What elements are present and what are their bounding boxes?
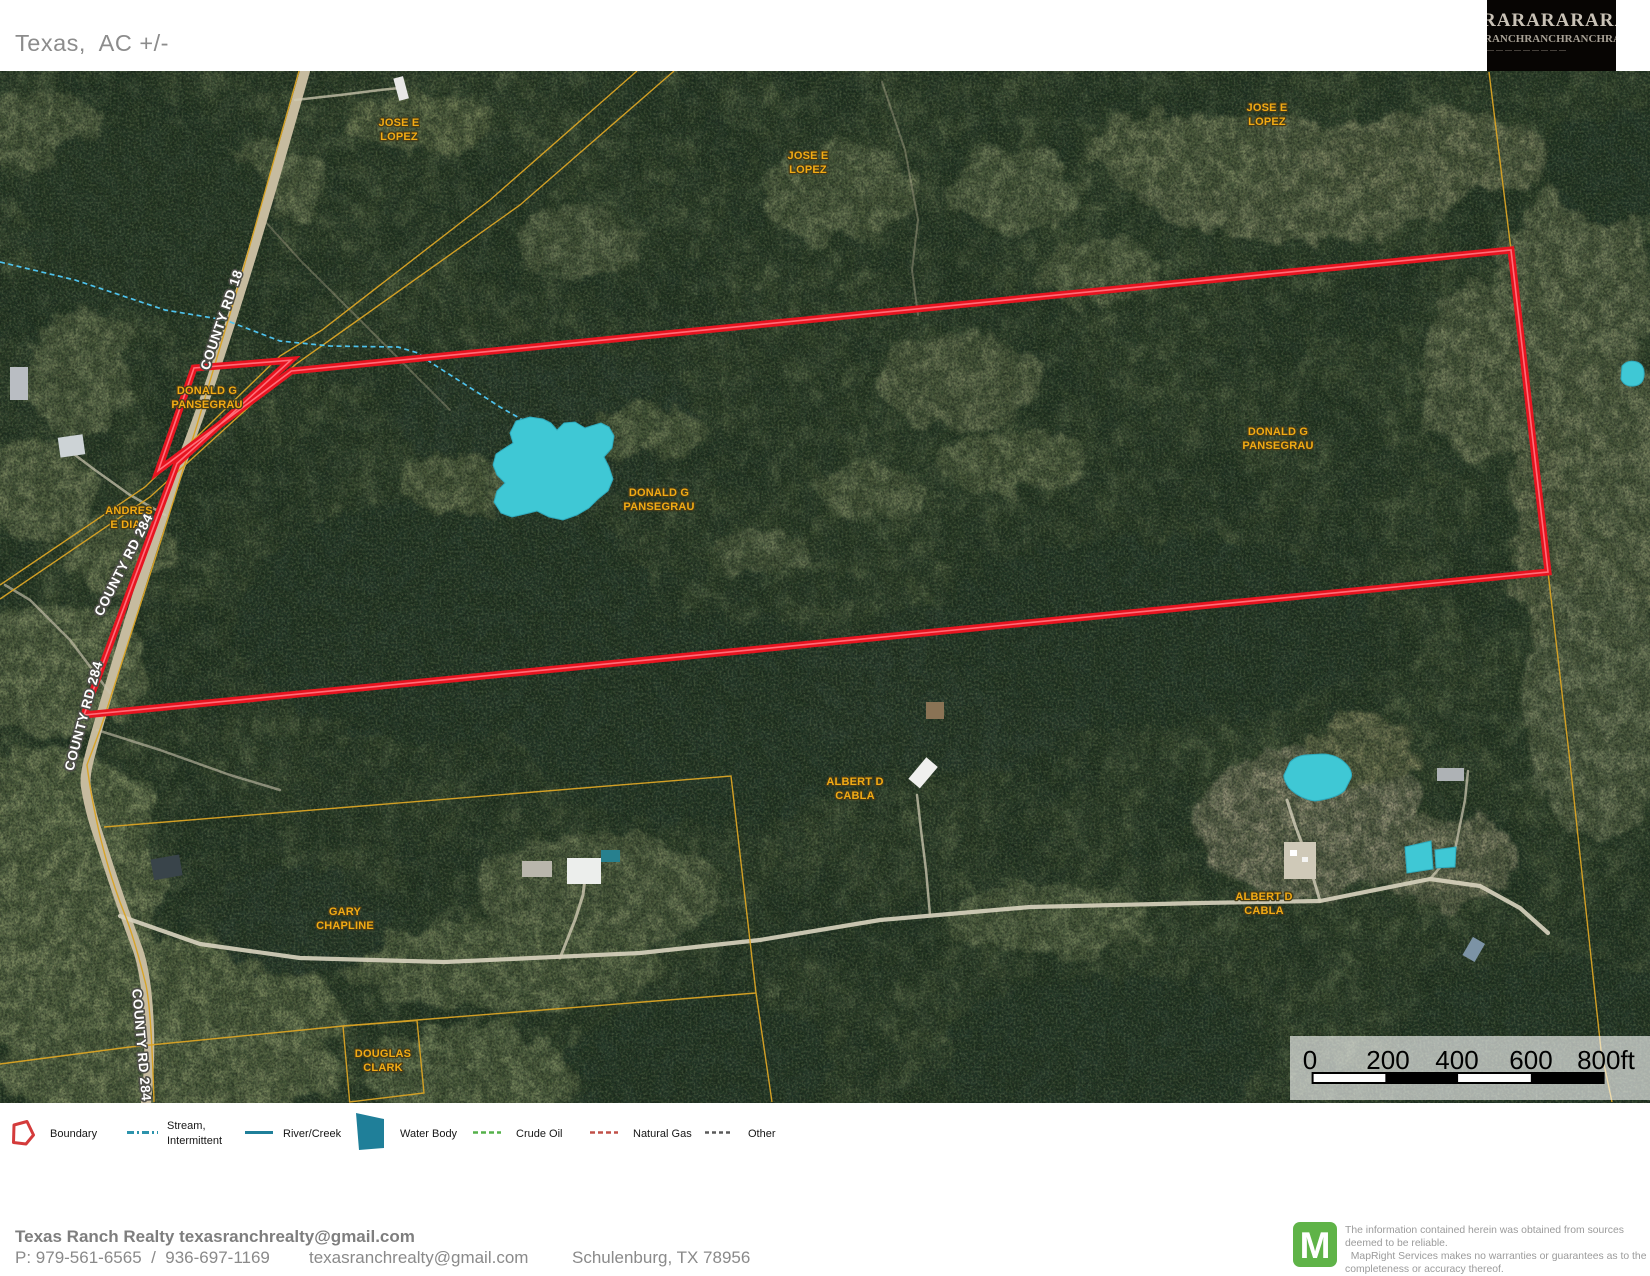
svg-text:CHAPLINE: CHAPLINE (316, 920, 374, 932)
svg-text:ALBERT D: ALBERT D (1235, 891, 1292, 903)
svg-text:200: 200 (1366, 1045, 1409, 1075)
svg-text:Other: Other (748, 1128, 776, 1140)
svg-text:CLARK: CLARK (363, 1062, 403, 1074)
svg-text:PANSEGRAU: PANSEGRAU (171, 399, 242, 411)
svg-text:LOPEZ: LOPEZ (1248, 116, 1286, 128)
svg-text:River/Creek: River/Creek (283, 1128, 342, 1140)
svg-text:JOSE E: JOSE E (788, 150, 829, 162)
svg-text:LOPEZ: LOPEZ (789, 164, 827, 176)
svg-text:GARY: GARY (329, 906, 362, 918)
svg-text:PANSEGRAU: PANSEGRAU (623, 501, 694, 513)
svg-text:CABLA: CABLA (1244, 905, 1284, 917)
svg-text:JOSE E: JOSE E (1247, 102, 1288, 114)
svg-text:DONALD G: DONALD G (629, 487, 689, 499)
svg-text:LOPEZ: LOPEZ (380, 131, 418, 143)
svg-text:DONALD G: DONALD G (177, 385, 237, 397)
svg-text:ALBERT D: ALBERT D (826, 776, 883, 788)
svg-text:Stream,: Stream, (167, 1120, 206, 1132)
svg-text:Intermittent: Intermittent (167, 1135, 222, 1147)
svg-text:800ft: 800ft (1577, 1045, 1636, 1075)
svg-text:DOUGLAS: DOUGLAS (355, 1048, 411, 1060)
svg-text:Water Body: Water Body (400, 1128, 458, 1140)
svg-text:Crude Oil: Crude Oil (516, 1128, 562, 1140)
svg-text:JOSE E: JOSE E (379, 117, 420, 129)
svg-text:Boundary: Boundary (50, 1128, 98, 1140)
svg-text:600: 600 (1509, 1045, 1552, 1075)
svg-text:DONALD G: DONALD G (1248, 426, 1308, 438)
svg-text:PANSEGRAU: PANSEGRAU (1242, 440, 1313, 452)
svg-text:0: 0 (1303, 1045, 1317, 1075)
svg-text:400: 400 (1435, 1045, 1478, 1075)
svg-text:Natural Gas: Natural Gas (633, 1128, 692, 1140)
svg-text:CABLA: CABLA (835, 790, 875, 802)
